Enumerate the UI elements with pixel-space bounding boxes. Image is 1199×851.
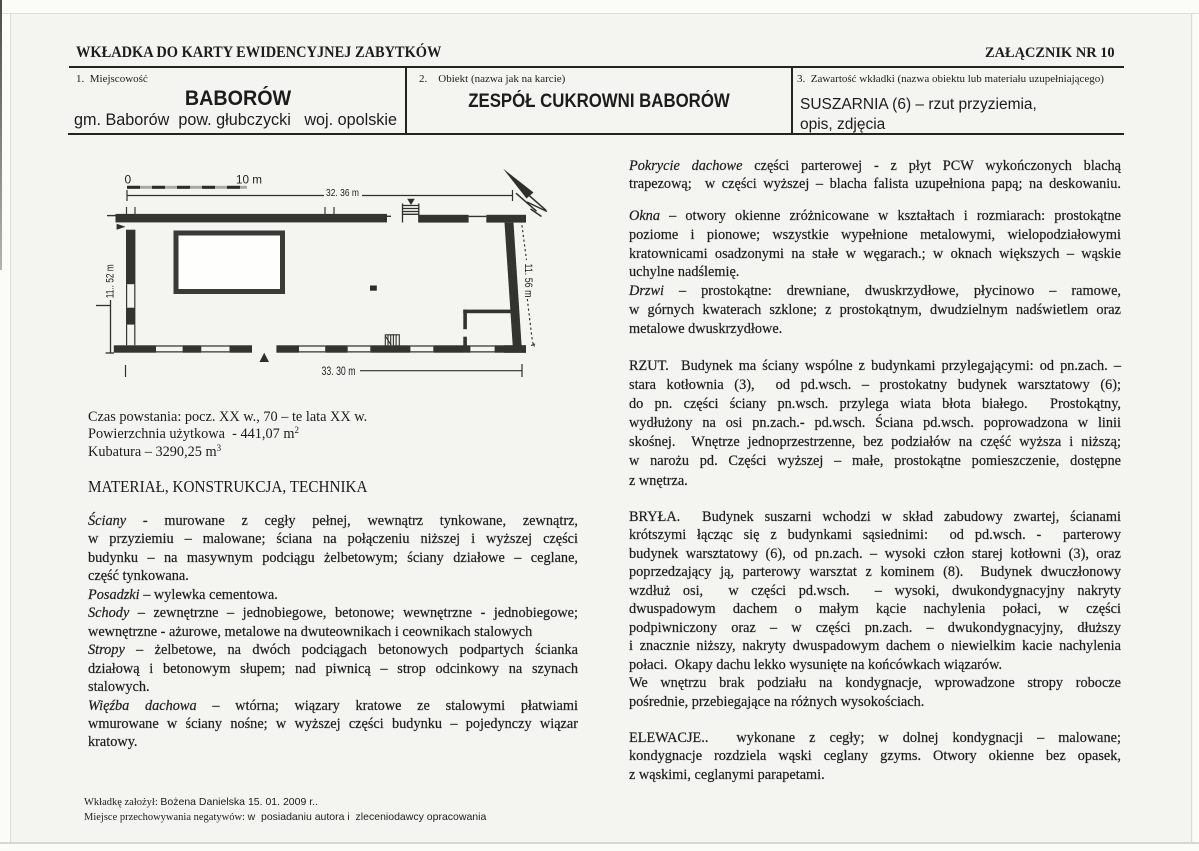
svg-text:0: 0 [125,173,132,187]
svg-text:33. 30 m: 33. 30 m [322,366,356,378]
svg-text:32. 36 m: 32. 36 m [326,187,359,199]
svg-text:10 m: 10 m [236,173,262,187]
svg-text:11.. 52 m: 11.. 52 m [105,264,117,298]
svg-text:11. 56 m: 11. 56 m [522,264,534,298]
